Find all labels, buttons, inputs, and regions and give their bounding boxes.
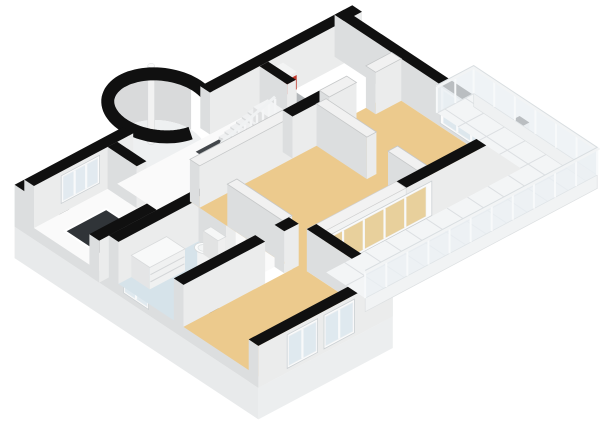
floorplan-canvas — [0, 0, 600, 424]
wall-wing-north-east[interactable] — [275, 217, 299, 273]
floorplan-3d-svg — [0, 0, 600, 424]
